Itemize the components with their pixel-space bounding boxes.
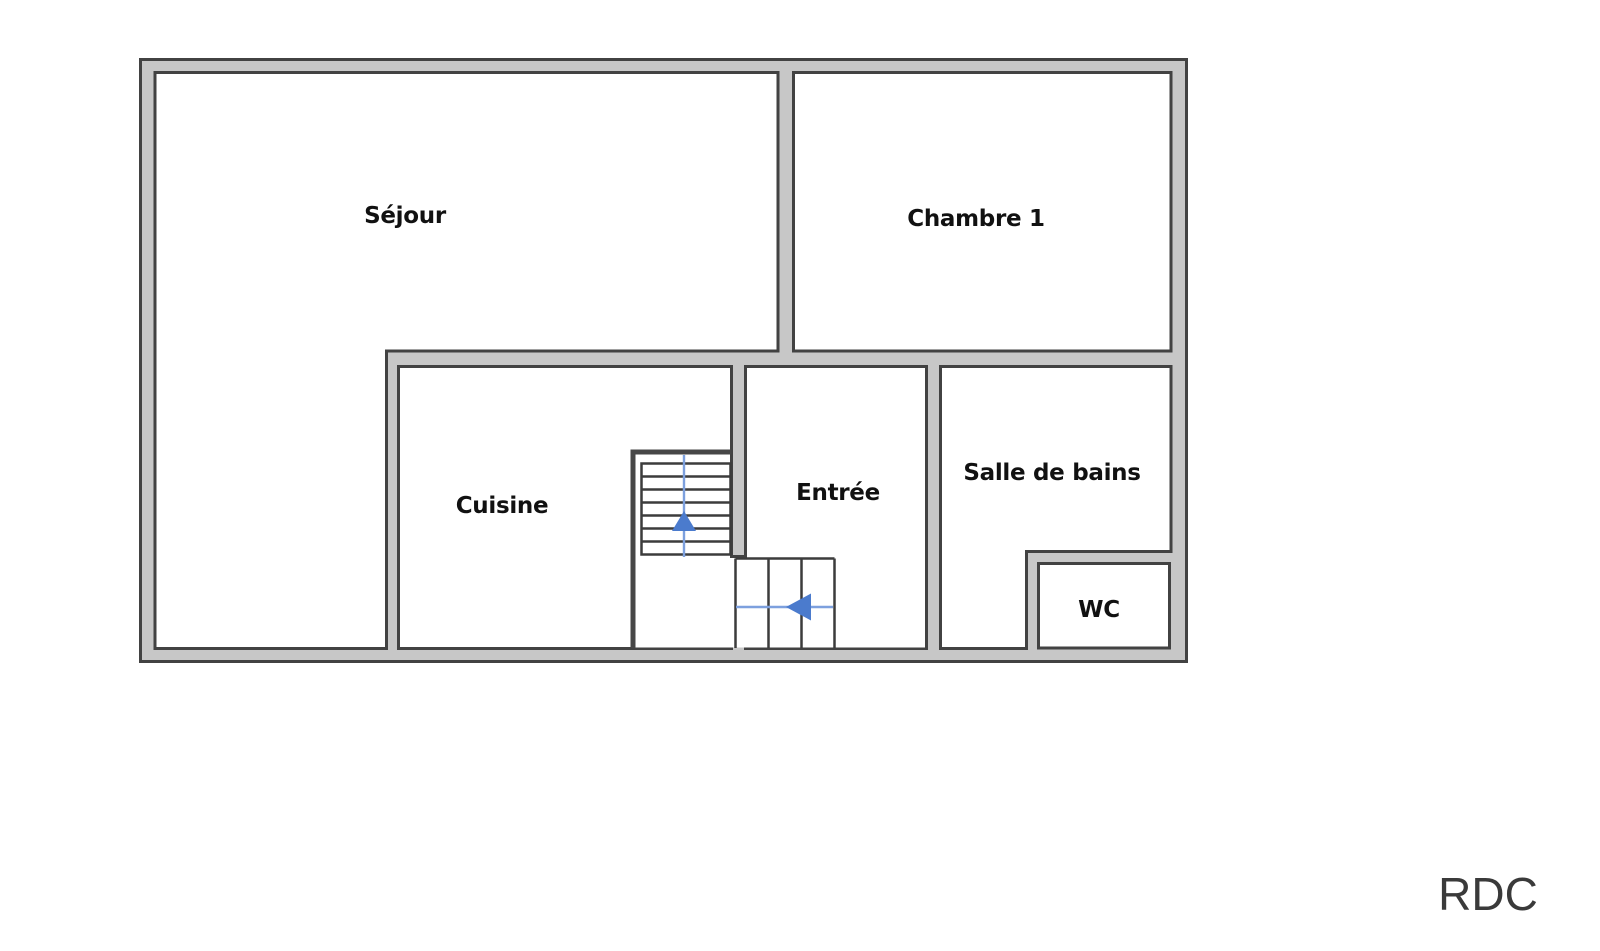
- room-entree-label: Entrée: [796, 480, 880, 506]
- room-salle-de-bains-label: Salle de bains: [963, 460, 1140, 486]
- room-wc-label: WC: [1078, 597, 1120, 623]
- floor-plan-page: Séjour Chambre 1 Cuisine Entrée Salle de…: [0, 0, 1600, 951]
- stairwell-opening: [634, 557, 925, 648]
- room-chambre-1-label: Chambre 1: [907, 206, 1044, 232]
- floor-plan-image: Séjour Chambre 1 Cuisine Entrée Salle de…: [0, 0, 1600, 951]
- room-sejour-label: Séjour: [364, 203, 447, 229]
- floor-label: RDC: [1438, 868, 1538, 920]
- room-cuisine-label: Cuisine: [456, 493, 549, 519]
